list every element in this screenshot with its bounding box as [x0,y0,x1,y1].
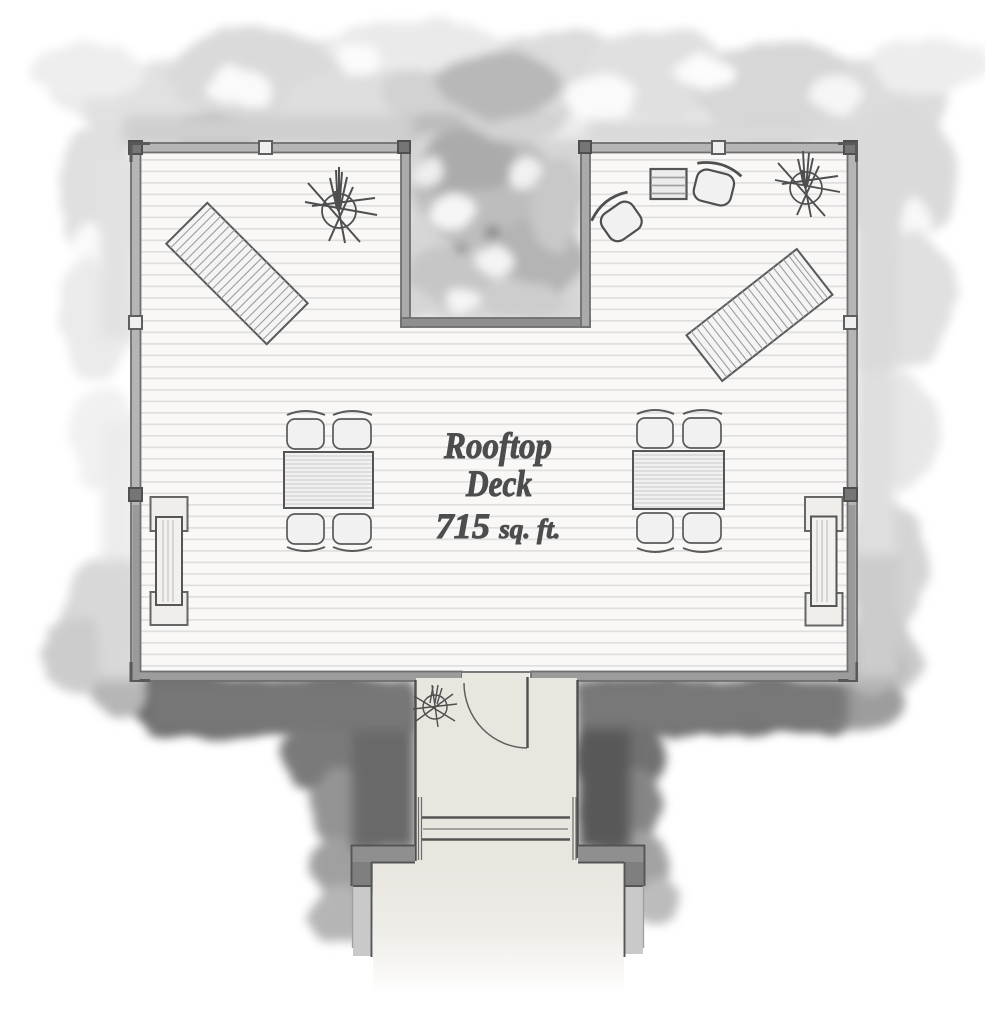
svg-text:Rooftop: Rooftop [443,426,552,467]
svg-text:Deck: Deck [465,464,532,505]
